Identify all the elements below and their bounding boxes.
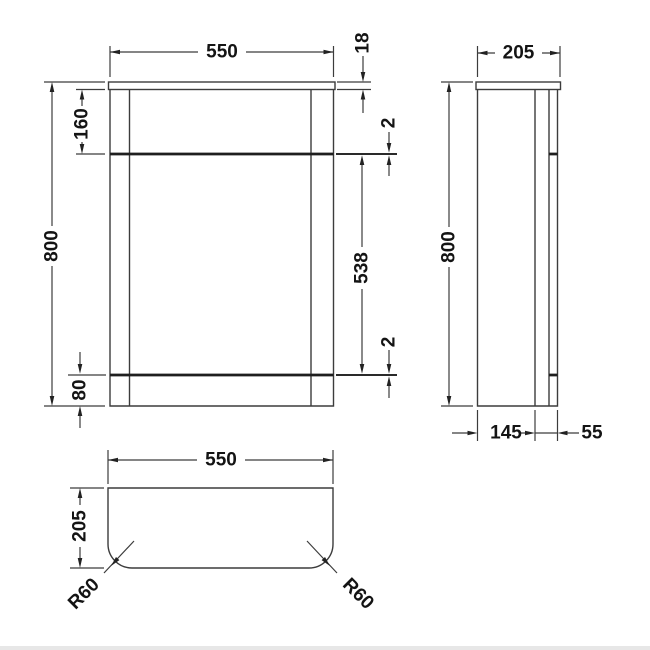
dim-front-width: 550 [206,42,238,63]
front-top-thickness-arrows [361,72,366,100]
front-top-thickness-dimension-lines [337,56,371,113]
dim-front-top-thickness: 18 [353,32,374,53]
front-worktop-outline [109,82,336,90]
dim-front-base: 80 [70,379,91,400]
side-gap-ticks [549,154,558,375]
front-gap-lines [110,154,334,375]
dim-plan-radius-left: R60 [64,574,103,613]
dim-front-upper-section: 160 [72,108,93,140]
dim-front-lower-gap: 2 [379,337,400,348]
dim-front-height: 800 [42,230,63,262]
side-worktop-outline [476,82,561,90]
plan-outline [108,488,333,568]
dim-plan-width: 550 [205,450,237,471]
dim-front-upper-gap: 2 [379,118,400,129]
side-carcass-outline [478,90,558,407]
dim-side-back-depth: 145 [490,423,522,444]
front-carcass-outline [110,90,334,407]
plan-view: 550 205 R60 R60 [64,450,377,614]
front-view: 550 18 160 800 2 538 2 80 [42,32,400,428]
dim-side-height: 800 [439,231,460,263]
technical-drawing-canvas: 550 18 160 800 2 538 2 80 [0,0,650,650]
image-bottom-edge [0,646,650,650]
side-view: 205 800 145 55 [439,43,603,444]
dim-side-front-depth: 55 [581,423,603,444]
dim-plan-radius-right: R60 [338,574,377,613]
dim-plan-depth: 205 [70,510,91,542]
dim-side-depth: 205 [503,43,535,64]
dim-front-middle-section: 538 [352,252,373,284]
